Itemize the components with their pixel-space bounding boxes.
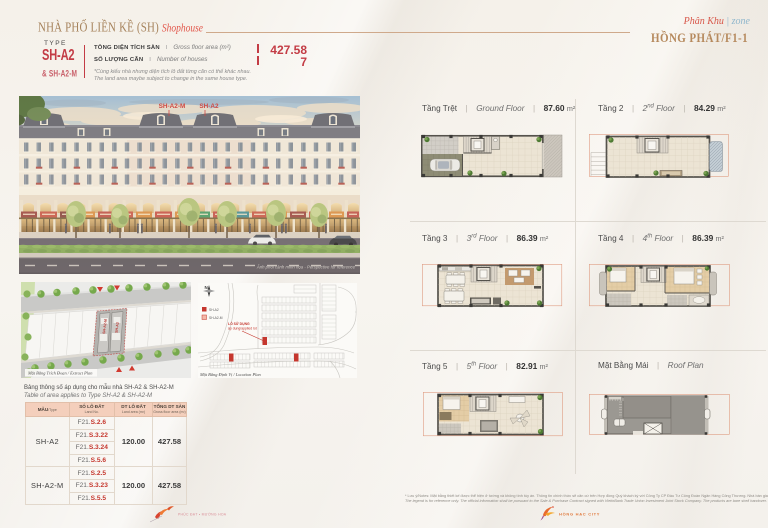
svg-text:LÔ SỬ DỤNG: LÔ SỬ DỤNG (228, 321, 250, 326)
svg-text:Mặt Bằng Trích Đoạn / Extract: Mặt Bằng Trích Đoạn / Extract Plan (27, 371, 93, 376)
svg-text:PHÚC ĐẠT • MƯỜNG HOA: PHÚC ĐẠT • MƯỜNG HOA (178, 512, 227, 517)
svg-text:N: N (205, 285, 208, 290)
svg-text:áp dụng/applied lot: áp dụng/applied lot (228, 327, 257, 331)
svg-text:SH-A2: SH-A2 (199, 103, 219, 110)
svg-text:Mặt Bằng Định Vị / Location Pl: Mặt Bằng Định Vị / Location Plan (199, 372, 262, 377)
svg-text:Ảnh phối cảnh minh họa - Persp: Ảnh phối cảnh minh họa - Perspective for… (256, 265, 356, 270)
svg-text:SH-A2-M: SH-A2-M (209, 316, 223, 320)
svg-text:SH-A2: SH-A2 (209, 308, 219, 312)
svg-text:HỒNG HẠC CITY: HỒNG HẠC CITY (559, 512, 600, 517)
svg-text:SH-A2-M: SH-A2-M (159, 103, 186, 110)
